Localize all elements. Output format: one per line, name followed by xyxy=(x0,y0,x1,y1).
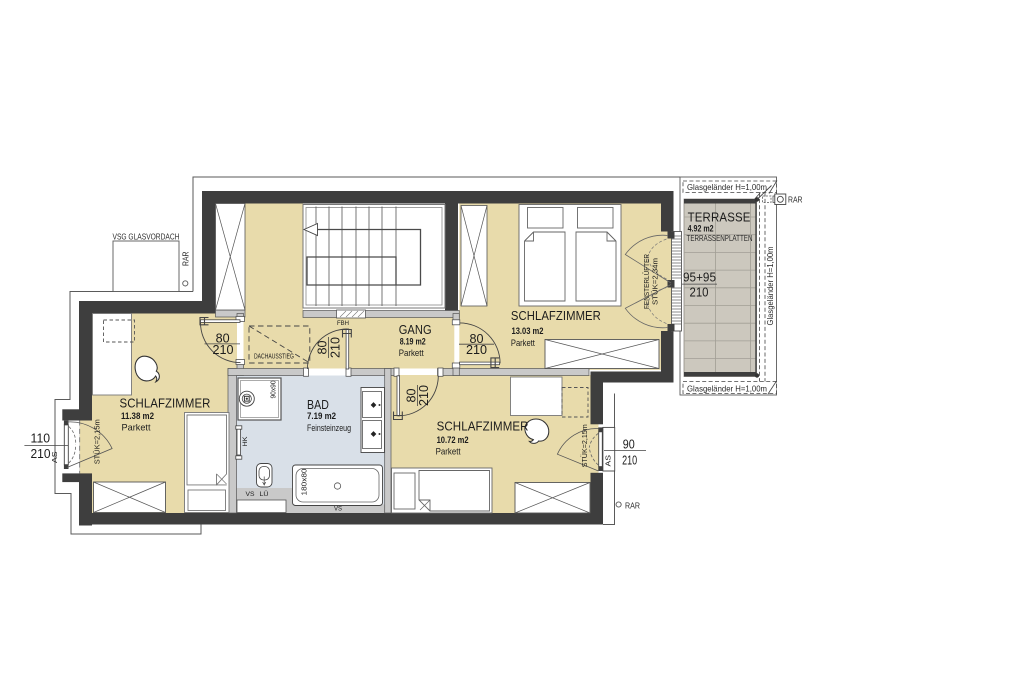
svg-text:GANG: GANG xyxy=(399,322,432,337)
svg-text:110: 110 xyxy=(31,432,51,446)
svg-text:10.72 m2: 10.72 m2 xyxy=(437,435,469,446)
svg-text:210: 210 xyxy=(31,447,51,461)
svg-text:SCHLAFZIMMER: SCHLAFZIMMER xyxy=(120,396,211,411)
svg-text:RAR: RAR xyxy=(625,500,640,510)
svg-text:210: 210 xyxy=(328,337,342,358)
svg-text:210: 210 xyxy=(622,454,637,468)
svg-text:HK: HK xyxy=(242,436,249,447)
svg-text:Glasgeländer H=1,00m: Glasgeländer H=1,00m xyxy=(687,383,767,393)
svg-text:210: 210 xyxy=(690,286,709,300)
svg-text:Glasgeländer H=1,00m: Glasgeländer H=1,00m xyxy=(687,182,767,192)
svg-text:95+95: 95+95 xyxy=(683,271,716,285)
svg-text:13.03 m2: 13.03 m2 xyxy=(512,326,544,337)
svg-text:STÜK=2,15m: STÜK=2,15m xyxy=(580,424,589,467)
svg-text:Glasgeländer H=1,00m: Glasgeländer H=1,00m xyxy=(765,247,775,326)
svg-text:210: 210 xyxy=(417,385,431,406)
svg-text:180x80: 180x80 xyxy=(299,469,308,496)
svg-text:7.19 m2: 7.19 m2 xyxy=(307,411,336,422)
svg-text:Feinsteinzeug: Feinsteinzeug xyxy=(307,423,351,434)
svg-text:STÜK=2,34m: STÜK=2,34m xyxy=(650,258,659,305)
svg-text:TERRASSENPLATTEN: TERRASSENPLATTEN xyxy=(687,233,753,243)
svg-text:210: 210 xyxy=(466,343,487,357)
svg-text:RAR: RAR xyxy=(181,252,191,267)
svg-text:Parkett: Parkett xyxy=(399,348,424,359)
svg-text:VS: VS xyxy=(246,491,256,498)
svg-text:LÜ: LÜ xyxy=(260,490,269,498)
svg-text:90x90: 90x90 xyxy=(268,381,277,399)
svg-text:VSG GLASVORDACH: VSG GLASVORDACH xyxy=(113,231,180,241)
svg-text:Parkett: Parkett xyxy=(122,423,151,434)
svg-text:SCHLAFZIMMER: SCHLAFZIMMER xyxy=(437,419,529,434)
svg-text:Parkett: Parkett xyxy=(436,447,461,458)
svg-text:90: 90 xyxy=(623,438,635,452)
svg-text:AS: AS xyxy=(50,451,59,463)
svg-text:TERRASSE: TERRASSE xyxy=(688,210,751,224)
svg-text:Parkett: Parkett xyxy=(511,338,535,349)
svg-text:RAR: RAR xyxy=(788,195,803,205)
svg-text:STÜK=2,15m: STÜK=2,15m xyxy=(92,419,101,464)
svg-text:FBH: FBH xyxy=(337,320,349,327)
svg-text:11.38 m2: 11.38 m2 xyxy=(121,411,154,422)
svg-text:SCHLAFZIMMER: SCHLAFZIMMER xyxy=(511,308,601,323)
svg-text:VS: VS xyxy=(334,506,343,513)
svg-text:DACHAUSSTIEG: DACHAUSSTIEG xyxy=(254,352,294,361)
svg-text:8.19 m2: 8.19 m2 xyxy=(400,337,426,348)
svg-text:210: 210 xyxy=(213,343,234,357)
svg-text:AS: AS xyxy=(604,455,613,467)
